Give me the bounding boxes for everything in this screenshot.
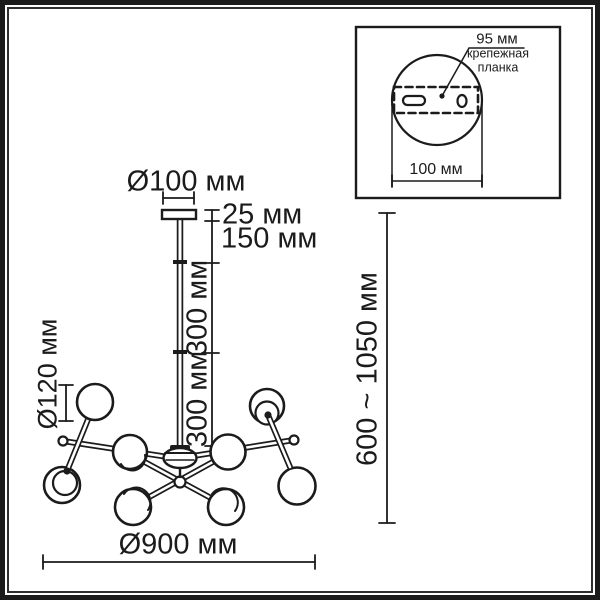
dim-stem-upper-section-label: 300 мм xyxy=(184,260,213,356)
globe-socket xyxy=(53,471,77,495)
dim-stem-top-label: 150 мм xyxy=(221,225,317,254)
inset-plate-width-label: 95 мм xyxy=(476,32,517,47)
arm-end-knob xyxy=(290,436,299,445)
chandelier-drawing xyxy=(44,210,316,525)
ceiling-canopy xyxy=(162,210,196,219)
chandelier-line-art xyxy=(0,0,600,600)
dim-globe-diameter-label: Ø120 мм xyxy=(35,319,62,430)
globe xyxy=(113,435,147,469)
globe xyxy=(279,468,316,505)
globe xyxy=(211,435,246,470)
globe xyxy=(208,489,244,525)
arm-end-knob xyxy=(59,437,68,446)
dim-overall-height-label: 600 ~ 1050 мм xyxy=(354,272,383,466)
dim-fixture-diameter-label: Ø900 мм xyxy=(119,531,238,560)
globe xyxy=(77,384,113,420)
inset-base-width-label: 100 мм xyxy=(409,162,462,178)
dim-stem-lower-section-label: 300 мм xyxy=(184,351,213,447)
globe xyxy=(115,489,151,525)
inset-plate-name-label: крепежная планка xyxy=(467,47,529,76)
dim-canopy-diameter-label: Ø100 мм xyxy=(127,168,246,197)
